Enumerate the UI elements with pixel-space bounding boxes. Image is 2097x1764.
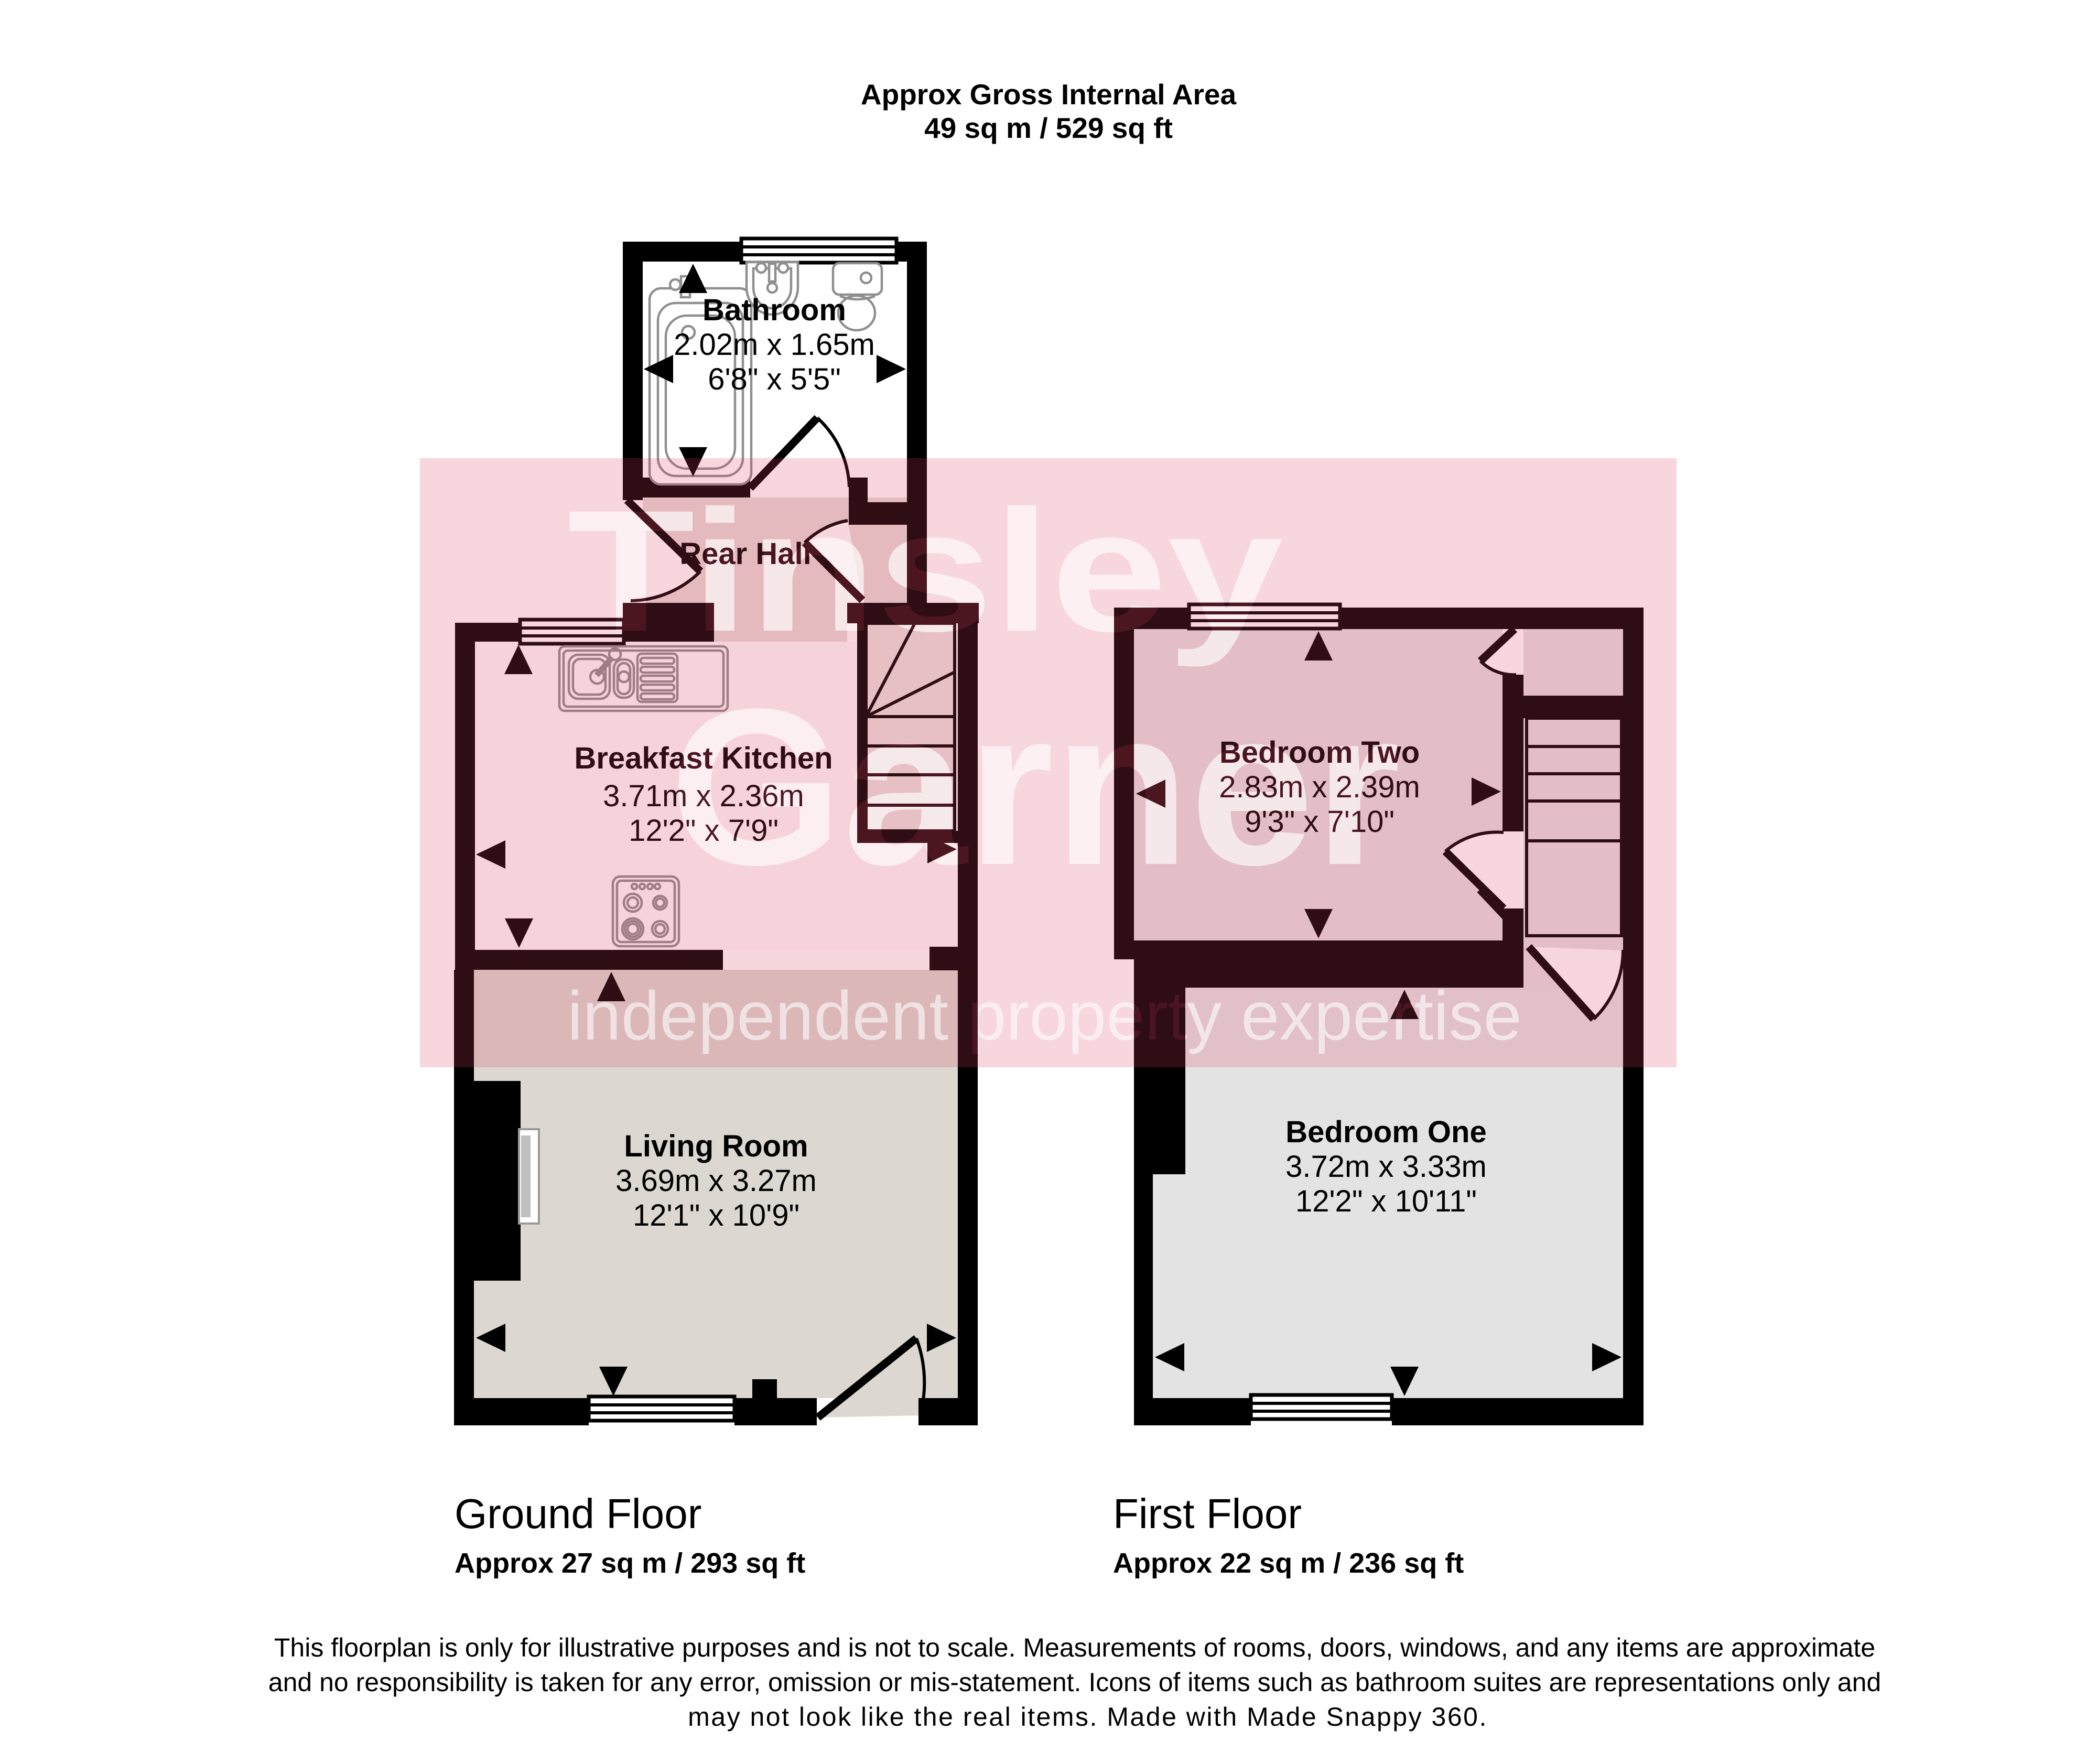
svg-text:Ground Floor: Ground Floor: [455, 1490, 701, 1537]
svg-text:49 sq m / 529 sq ft: 49 sq m / 529 sq ft: [924, 112, 1173, 144]
svg-text:12'1" x 10'9": 12'1" x 10'9": [633, 1198, 799, 1232]
svg-text:independent property expertise: independent property expertise: [567, 977, 1522, 1054]
svg-text:Tinsley: Tinsley: [567, 474, 1285, 668]
svg-text:Bathroom: Bathroom: [702, 293, 846, 327]
svg-text:3.72m x 3.33m: 3.72m x 3.33m: [1285, 1150, 1487, 1184]
svg-text:Approx 27 sq m / 293 sq ft: Approx 27 sq m / 293 sq ft: [455, 1547, 805, 1579]
svg-text:and no responsibility is taken: and no responsibility is taken for any e…: [268, 1668, 1881, 1697]
svg-text:Bedroom One: Bedroom One: [1285, 1115, 1487, 1149]
svg-text:Approx Gross Internal Area: Approx Gross Internal Area: [861, 78, 1237, 111]
svg-text:Approx 22 sq m / 236 sq ft: Approx 22 sq m / 236 sq ft: [1113, 1547, 1464, 1579]
svg-text:Garner: Garner: [669, 663, 1401, 912]
svg-text:First Floor: First Floor: [1113, 1490, 1302, 1537]
svg-text:12'2" x 10'11": 12'2" x 10'11": [1295, 1184, 1477, 1218]
svg-text:2.02m x 1.65m: 2.02m x 1.65m: [674, 328, 875, 362]
svg-text:may not look like the real ite: may not look like the real items. Made w…: [688, 1702, 1488, 1731]
svg-text:6'8" x 5'5": 6'8" x 5'5": [708, 362, 841, 396]
svg-text:Living Room: Living Room: [624, 1129, 808, 1163]
svg-text:This floorplan is only for ill: This floorplan is only for illustrative …: [274, 1633, 1875, 1662]
svg-text:3.69m x 3.27m: 3.69m x 3.27m: [615, 1164, 817, 1198]
